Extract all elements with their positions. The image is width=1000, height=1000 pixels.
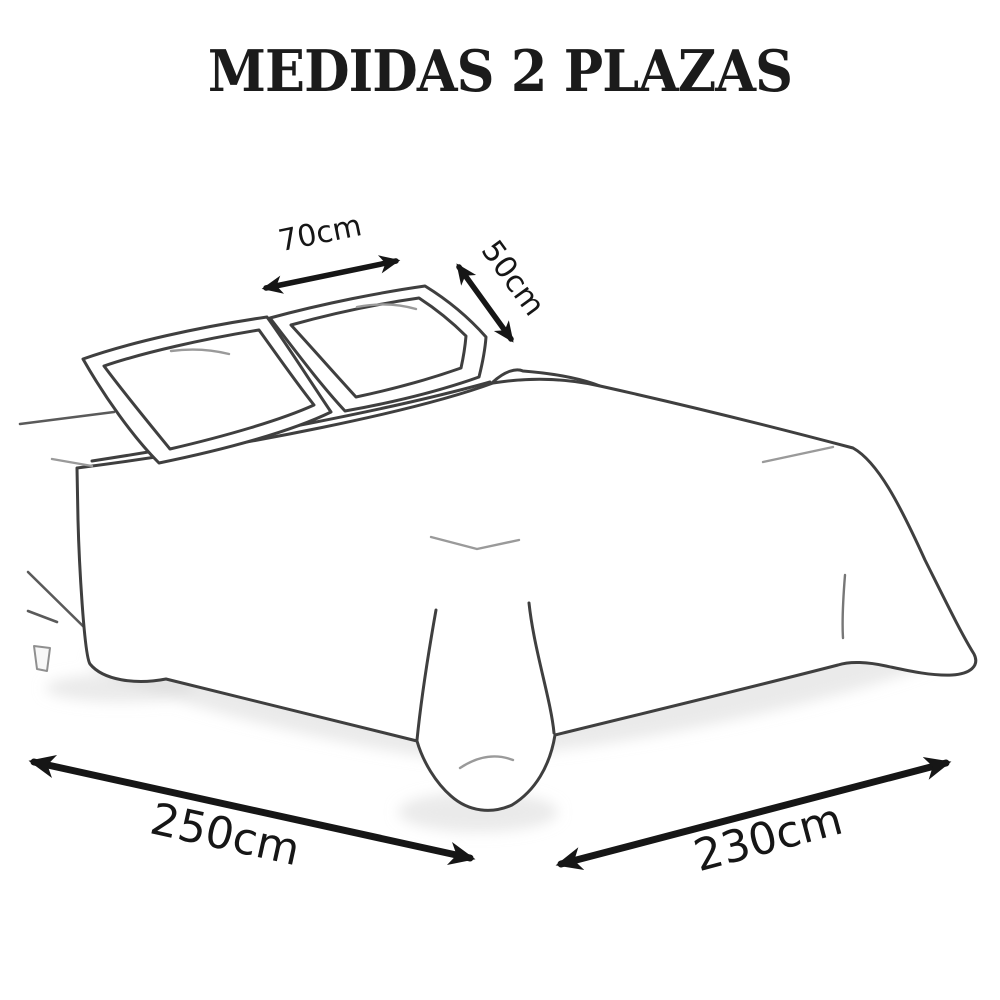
bed-leg <box>34 646 50 671</box>
crease-left <box>52 459 92 466</box>
lower-rail-line <box>28 611 57 622</box>
bed-illustration: 70cm 50cm 250cm 230cm <box>0 0 1000 1000</box>
bed-width-dimension: 230cm <box>561 763 946 882</box>
product-dimension-diagram: MEDIDAS 2 PLAZAS <box>0 0 1000 1000</box>
pillow-width-dimension: 70cm <box>266 208 396 288</box>
pillow-depth-label: 50cm <box>474 234 552 322</box>
headboard-rail-line <box>20 412 114 424</box>
dimension-arrow-pillow-width <box>266 261 396 288</box>
pillow-width-label: 70cm <box>276 208 365 259</box>
